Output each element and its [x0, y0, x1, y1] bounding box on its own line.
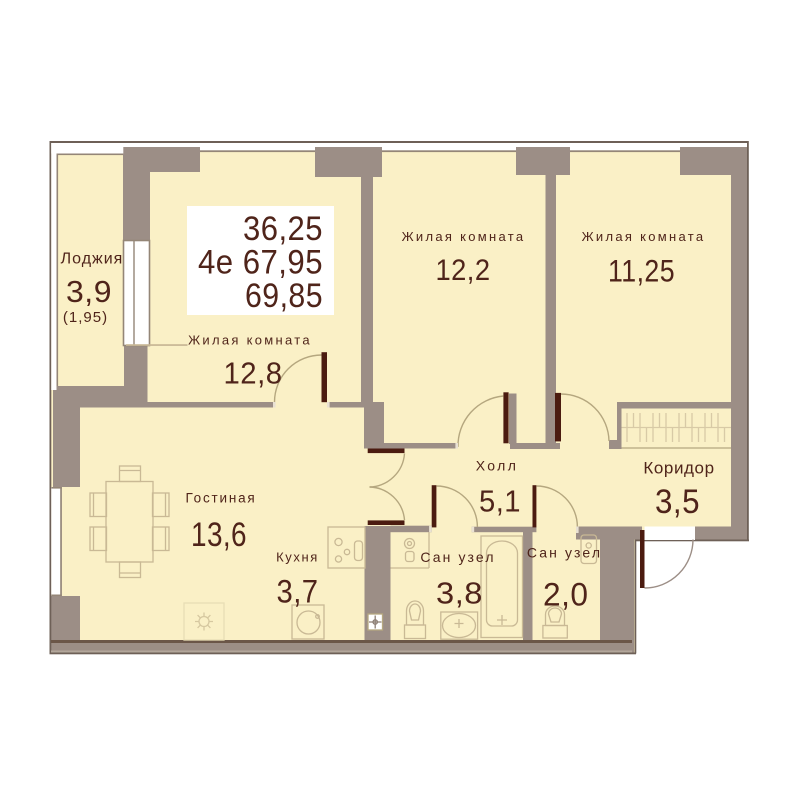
- svg-text:5,1: 5,1: [479, 485, 521, 519]
- svg-text:3,9: 3,9: [66, 275, 112, 309]
- svg-text:Сан узел: Сан узел: [420, 549, 495, 565]
- svg-text:Кухня: Кухня: [276, 550, 319, 565]
- svg-text:12,2: 12,2: [436, 254, 491, 287]
- svg-text:3,7: 3,7: [277, 574, 319, 610]
- svg-text:11,25: 11,25: [608, 253, 675, 289]
- svg-text:Лоджия: Лоджия: [61, 251, 124, 268]
- svg-text:13,6: 13,6: [191, 516, 247, 554]
- svg-text:Жилая комната: Жилая комната: [582, 229, 706, 244]
- svg-text:3,5: 3,5: [655, 483, 700, 521]
- svg-text:3,8: 3,8: [436, 577, 483, 611]
- svg-text:4е 67,95: 4е 67,95: [198, 244, 323, 282]
- svg-text:Коридор: Коридор: [643, 459, 714, 478]
- svg-text:Гостиная: Гостиная: [185, 491, 256, 506]
- svg-text:(1,95): (1,95): [63, 309, 108, 326]
- svg-text:Сан узел: Сан узел: [527, 545, 602, 561]
- svg-text:36,25: 36,25: [243, 210, 323, 248]
- svg-text:Жилая комната: Жилая комната: [188, 333, 312, 348]
- svg-text:2,0: 2,0: [543, 577, 589, 613]
- svg-text:Жилая комната: Жилая комната: [402, 229, 526, 244]
- svg-text:Холл: Холл: [476, 458, 519, 474]
- svg-text:12,8: 12,8: [224, 356, 283, 391]
- svg-text:69,85: 69,85: [245, 277, 323, 315]
